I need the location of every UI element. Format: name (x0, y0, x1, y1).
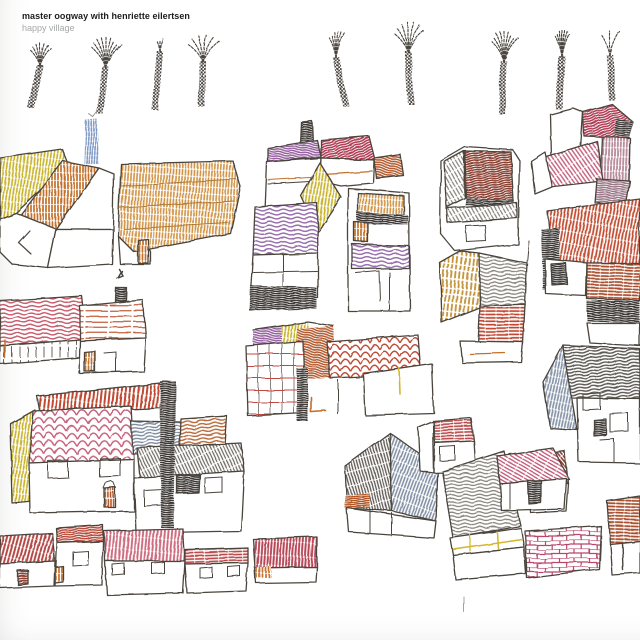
bottom-row-house-3 (104, 529, 185, 595)
house-big-scallop-roof (10, 381, 244, 533)
house-l-shaped-longhouse (246, 322, 434, 421)
bottom-row-house-2 (55, 525, 103, 586)
house-pink-brick-wall (525, 526, 601, 578)
house-gray-roof-right (543, 345, 640, 463)
house-central-cluster (249, 121, 410, 311)
header: master oogway with henriette eilertsen h… (22, 11, 190, 34)
house-pink-tower-cluster (531, 104, 640, 346)
house-right-edge-red (607, 496, 640, 575)
house-yellow-roof-barn (0, 119, 114, 268)
album-name: happy village (22, 23, 190, 35)
tree-6 (394, 23, 424, 104)
house-long-pink-roof (0, 296, 88, 364)
house-pink-fan-roof (497, 448, 569, 511)
tree-8 (555, 30, 569, 109)
tree-1 (27, 43, 50, 108)
house-thatched-roof (118, 161, 241, 264)
house-maroon-roof (440, 147, 520, 251)
album-cover: master oogway with henriette eilertsen h… (0, 0, 640, 640)
tree-2 (92, 37, 122, 114)
bottom-row-house-1 (0, 533, 55, 588)
pencil-mark-1 (89, 112, 97, 117)
tree-5 (329, 31, 349, 106)
tree-4 (189, 35, 221, 106)
bottom-row-house-5 (253, 537, 317, 583)
bottom-row-house-4 (185, 548, 248, 593)
village-illustration (0, 0, 640, 640)
house-yellow-gable (440, 241, 529, 363)
tree-3 (151, 39, 163, 110)
artist-name: master oogway with henriette eilertsen (22, 11, 190, 23)
pencil-mark-2 (118, 269, 123, 278)
tree-7 (491, 31, 518, 114)
village-scene (0, 23, 640, 612)
tree-9 (602, 31, 620, 100)
house-striped-roof-cottage (79, 288, 146, 373)
